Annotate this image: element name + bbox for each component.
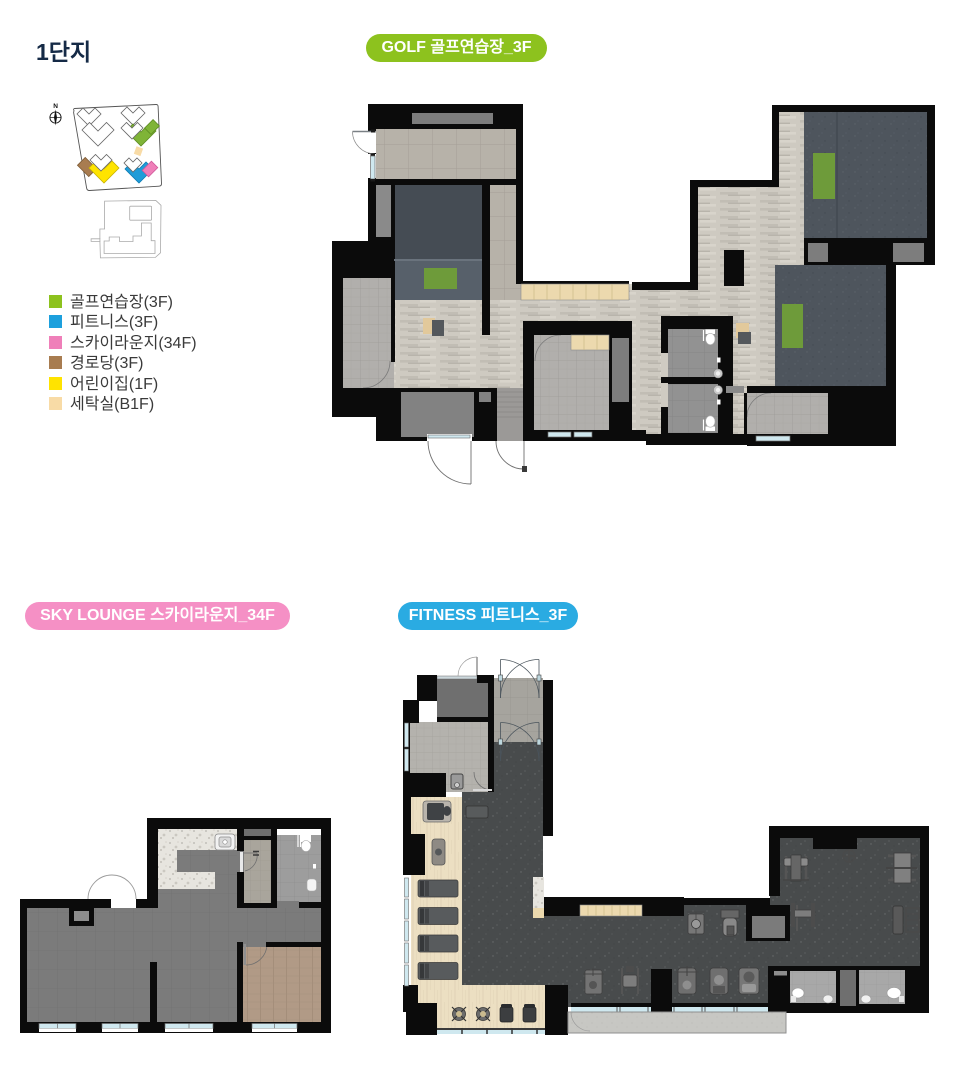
- svg-text:N: N: [53, 103, 58, 110]
